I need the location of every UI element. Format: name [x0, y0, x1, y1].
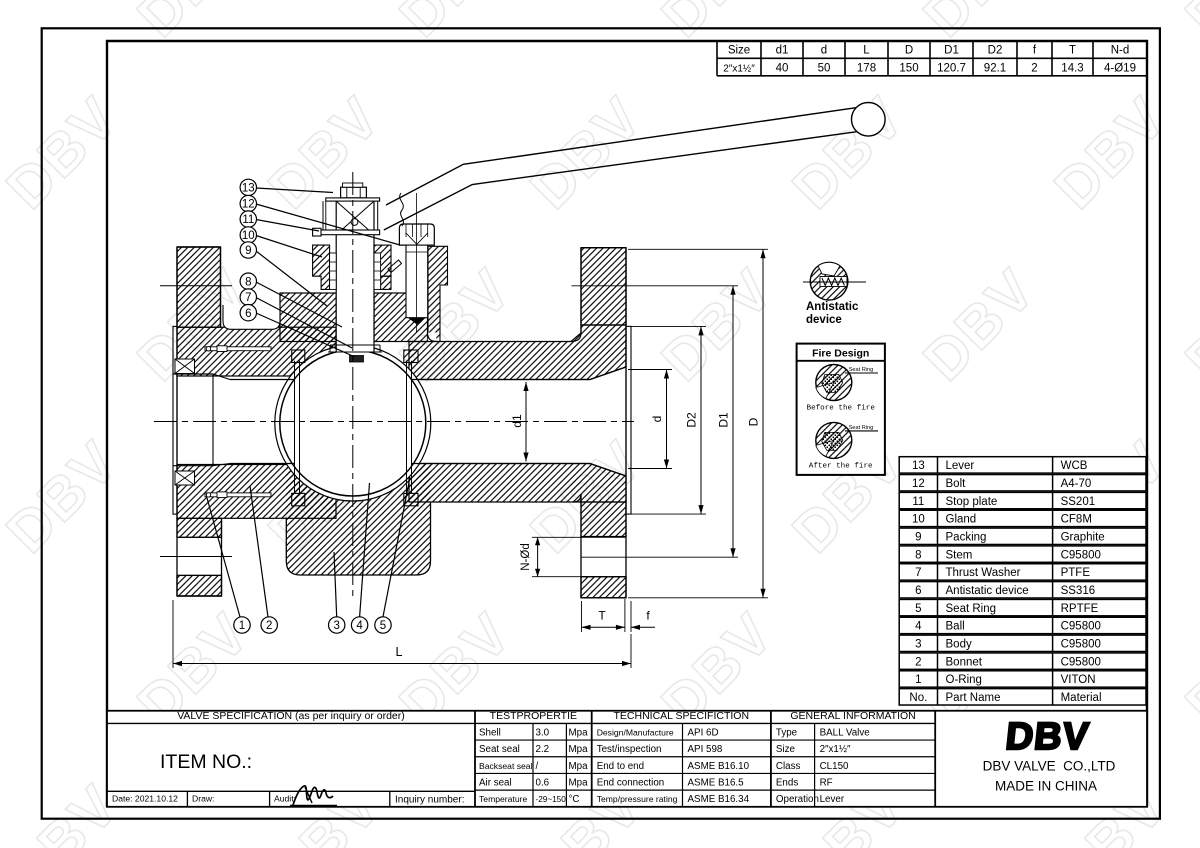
- svg-text:D: D: [905, 45, 913, 57]
- svg-text:ASME B16.5: ASME B16.5: [688, 777, 745, 788]
- svg-text:2″x1½″: 2″x1½″: [820, 744, 851, 755]
- svg-text:Date: 2021.10.12: Date: 2021.10.12: [112, 794, 178, 804]
- svg-text:Inquiry number:: Inquiry number:: [395, 795, 464, 806]
- svg-text:C95800: C95800: [1061, 639, 1101, 651]
- svg-text:/: /: [536, 761, 539, 772]
- svg-text:40: 40: [776, 63, 789, 75]
- svg-text:WCB: WCB: [1061, 460, 1088, 472]
- svg-text:Bolt: Bolt: [946, 478, 967, 490]
- svg-text:Temp/pressure rating: Temp/pressure rating: [597, 794, 678, 804]
- svg-text:4-Ø19: 4-Ø19: [1104, 63, 1136, 75]
- svg-text:4: 4: [915, 621, 922, 633]
- svg-text:d1: d1: [510, 414, 524, 428]
- svg-text:Backseat seal: Backseat seal: [479, 761, 533, 771]
- svg-text:14.3: 14.3: [1061, 63, 1083, 75]
- svg-text:Operation: Operation: [776, 794, 819, 805]
- svg-text:Type: Type: [776, 727, 798, 738]
- svg-text:Gland: Gland: [946, 514, 977, 526]
- svg-text:°C: °C: [569, 794, 580, 805]
- svg-text:Audit:: Audit:: [274, 794, 296, 804]
- svg-text:Size: Size: [728, 45, 750, 57]
- svg-text:Seat Ring: Seat Ring: [946, 603, 997, 615]
- svg-text:1: 1: [239, 620, 245, 632]
- svg-text:0.6: 0.6: [536, 777, 550, 788]
- svg-text:50: 50: [818, 63, 831, 75]
- svg-text:Ball: Ball: [946, 621, 965, 633]
- svg-text:6: 6: [245, 308, 251, 320]
- svg-text:5: 5: [915, 603, 921, 615]
- svg-text:Part Name: Part Name: [946, 692, 1001, 704]
- svg-text:C95800: C95800: [1061, 656, 1101, 668]
- svg-text:D1: D1: [944, 45, 959, 57]
- svg-text:d: d: [821, 45, 827, 57]
- svg-text:Mpa: Mpa: [569, 744, 589, 755]
- svg-text:SS201: SS201: [1061, 496, 1096, 508]
- svg-text:No.: No.: [909, 692, 927, 704]
- svg-text:7: 7: [915, 567, 921, 579]
- svg-text:CF8M: CF8M: [1061, 514, 1092, 526]
- svg-text:Material: Material: [1061, 692, 1102, 704]
- svg-text:device: device: [806, 314, 842, 326]
- svg-text:1: 1: [915, 674, 921, 686]
- svg-text:Stop plate: Stop plate: [946, 496, 998, 508]
- svg-text:Ends: Ends: [776, 777, 798, 788]
- svg-text:VALVE SPECIFICATION (as per in: VALVE SPECIFICATION (as per inquiry or o…: [177, 710, 405, 722]
- svg-text:2: 2: [915, 656, 921, 668]
- svg-text:ITEM NO.:: ITEM NO.:: [160, 751, 252, 773]
- svg-text:API 598: API 598: [688, 744, 723, 755]
- svg-text:2″x1½″: 2″x1½″: [723, 64, 755, 75]
- svg-text:d: d: [650, 416, 664, 423]
- svg-text:9: 9: [245, 245, 251, 257]
- svg-text:120.7: 120.7: [937, 63, 966, 75]
- svg-text:SS316: SS316: [1061, 585, 1096, 597]
- svg-text:Mpa: Mpa: [569, 761, 589, 772]
- svg-text:3.0: 3.0: [536, 727, 550, 738]
- svg-text:5: 5: [380, 620, 386, 632]
- svg-text:9: 9: [915, 531, 921, 543]
- svg-text:Draw:: Draw:: [192, 794, 214, 804]
- svg-text:Lever: Lever: [946, 460, 975, 472]
- svg-text:C95800: C95800: [1061, 549, 1101, 561]
- svg-text:RF: RF: [820, 777, 833, 788]
- svg-text:N-d: N-d: [1111, 45, 1130, 57]
- svg-text:VITON: VITON: [1061, 674, 1096, 686]
- svg-text:Test/inspection: Test/inspection: [597, 744, 662, 755]
- svg-text:11: 11: [242, 214, 254, 226]
- svg-text:CL150: CL150: [820, 761, 849, 772]
- svg-text:2: 2: [1031, 63, 1037, 75]
- svg-text:End to end: End to end: [597, 761, 644, 772]
- svg-text:Antistatic device: Antistatic device: [946, 585, 1029, 597]
- svg-text:ASME B16.10: ASME B16.10: [688, 761, 750, 772]
- svg-text:Size: Size: [776, 744, 796, 755]
- svg-text:3: 3: [333, 620, 339, 632]
- svg-text:11: 11: [912, 496, 924, 508]
- svg-text:8: 8: [245, 276, 251, 288]
- svg-text:Fire Design: Fire Design: [812, 348, 869, 360]
- svg-text:API 6D: API 6D: [688, 727, 719, 738]
- svg-text:Before the fire: Before the fire: [807, 405, 876, 413]
- svg-text:Packing: Packing: [946, 531, 987, 543]
- svg-text:D2: D2: [988, 45, 1003, 57]
- svg-text:PTFE: PTFE: [1061, 567, 1091, 579]
- svg-text:Mpa: Mpa: [569, 777, 589, 788]
- svg-text:RPTFE: RPTFE: [1061, 603, 1099, 615]
- svg-text:Bonnet: Bonnet: [946, 656, 983, 668]
- svg-text:L: L: [396, 645, 403, 659]
- svg-text:GENERAL INFORMATION: GENERAL INFORMATION: [790, 710, 915, 722]
- svg-text:13: 13: [912, 460, 925, 472]
- svg-text:TECHNICAL SPECIFICTION: TECHNICAL SPECIFICTION: [614, 710, 750, 722]
- svg-text:C95800: C95800: [1061, 621, 1101, 633]
- svg-text:d1: d1: [776, 45, 789, 57]
- svg-text:4: 4: [356, 620, 363, 632]
- svg-text:3: 3: [915, 639, 921, 651]
- svg-text:O-Ring: O-Ring: [946, 674, 982, 686]
- svg-text:After the fire: After the fire: [809, 463, 873, 471]
- svg-text:Temperature: Temperature: [479, 794, 527, 804]
- svg-text:6: 6: [915, 585, 921, 597]
- svg-text:Thrust Washer: Thrust Washer: [946, 567, 1021, 579]
- svg-text:D: D: [747, 417, 761, 426]
- svg-text:178: 178: [857, 63, 876, 75]
- svg-text:10: 10: [242, 230, 255, 242]
- svg-text:Class: Class: [776, 761, 801, 772]
- svg-text:A4-70: A4-70: [1061, 478, 1092, 490]
- svg-text:2: 2: [266, 620, 272, 632]
- svg-text:7: 7: [245, 292, 251, 304]
- svg-text:MADE IN CHINA: MADE IN CHINA: [995, 779, 1097, 794]
- svg-text:Mpa: Mpa: [569, 727, 589, 738]
- svg-text:Design/Manufacture: Design/Manufacture: [597, 727, 674, 737]
- svg-text:Air seal: Air seal: [479, 777, 512, 788]
- svg-text:-29~150: -29~150: [536, 795, 567, 804]
- svg-text:T: T: [1069, 45, 1076, 57]
- svg-text:ASME B16.34: ASME B16.34: [688, 794, 750, 805]
- svg-text:End connection: End connection: [597, 777, 665, 788]
- svg-text:Seat Ring: Seat Ring: [849, 425, 874, 431]
- svg-text:Stem: Stem: [946, 549, 973, 561]
- svg-text:T: T: [598, 609, 606, 623]
- svg-text:Graphite: Graphite: [1061, 531, 1105, 543]
- svg-text:12: 12: [242, 199, 255, 211]
- svg-text:13: 13: [242, 183, 255, 195]
- svg-text:Body: Body: [946, 639, 972, 651]
- svg-text:Antistatic: Antistatic: [806, 301, 859, 313]
- svg-text:Seat seal: Seat seal: [479, 744, 520, 755]
- svg-text:150: 150: [899, 63, 918, 75]
- svg-text:TESTPROPERTIE: TESTPROPERTIE: [490, 710, 577, 722]
- svg-text:2.2: 2.2: [536, 744, 550, 755]
- svg-text:Shell: Shell: [479, 727, 501, 738]
- svg-text:10: 10: [912, 514, 925, 526]
- svg-text:D2: D2: [685, 412, 699, 428]
- svg-text:92.1: 92.1: [984, 63, 1006, 75]
- svg-text:L: L: [863, 45, 870, 57]
- svg-text:BALL Valve: BALL Valve: [820, 727, 871, 738]
- svg-text:DBV VALVE CO.,LTD: DBV VALVE CO.,LTD: [983, 759, 1116, 774]
- svg-text:Seat Ring: Seat Ring: [849, 367, 874, 373]
- svg-text:8: 8: [915, 549, 921, 561]
- svg-text:D1: D1: [717, 412, 731, 428]
- svg-text:12: 12: [912, 478, 925, 490]
- svg-text:N-Ød: N-Ød: [520, 543, 532, 570]
- svg-text:DBV: DBV: [1004, 716, 1092, 758]
- svg-text:Lever: Lever: [820, 794, 845, 805]
